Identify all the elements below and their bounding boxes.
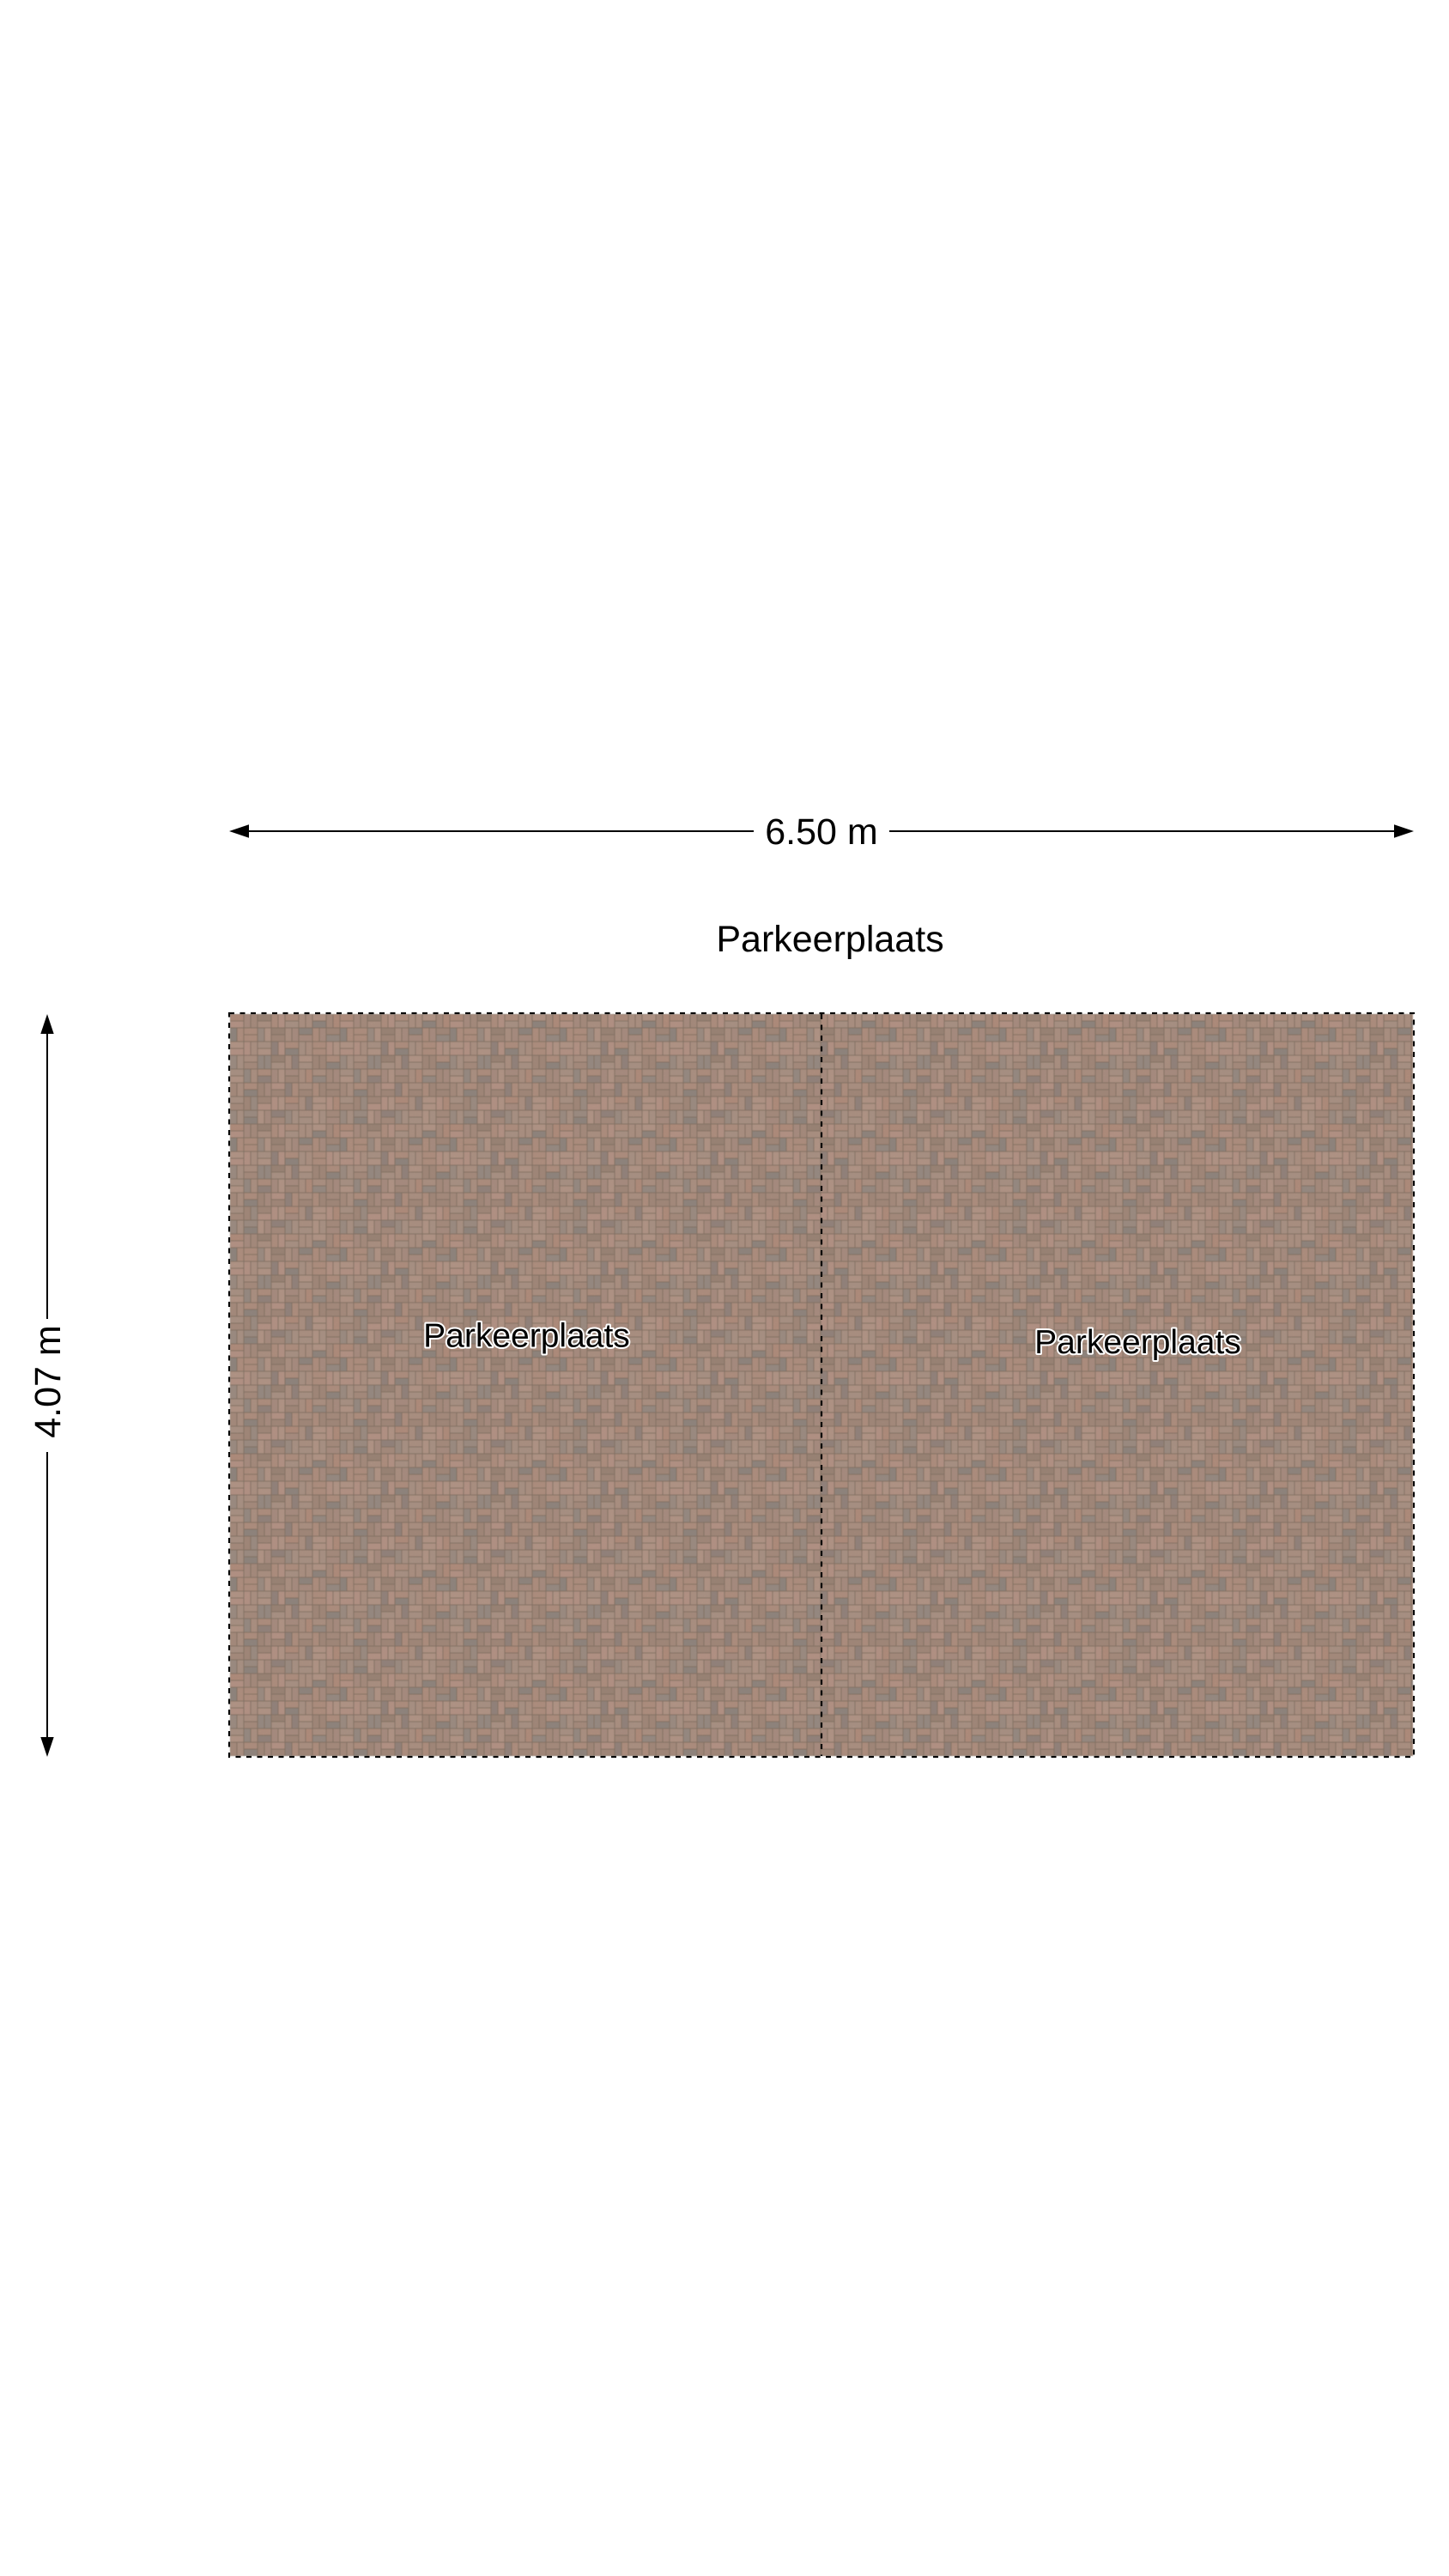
svg-text:Parkeerplaats: Parkeerplaats [716, 919, 943, 960]
svg-text:4.07 m: 4.07 m [27, 1325, 69, 1437]
svg-text:Parkeerplaats: Parkeerplaats [423, 1318, 630, 1355]
svg-text:6.50 m: 6.50 m [765, 811, 877, 853]
svg-text:Parkeerplaats: Parkeerplaats [1034, 1324, 1241, 1361]
